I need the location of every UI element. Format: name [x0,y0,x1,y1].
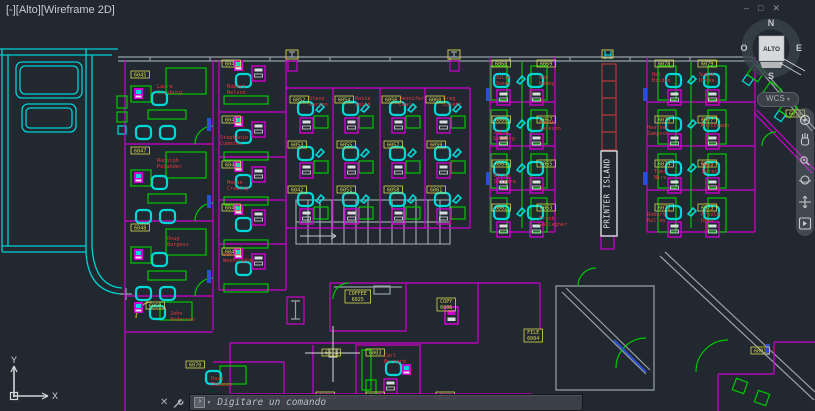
command-close-icon[interactable]: ✕ [160,397,168,408]
svg-text:Crowley: Crowley [227,186,249,192]
svg-text:Bernard: Bernard [384,359,406,365]
employee-name: PattiMoret [702,163,718,175]
employee-name: SteveLarson [309,96,328,108]
viewport-view-button[interactable]: [Alto] [16,4,41,16]
svg-text:6076: 6076 [658,117,671,123]
svg-text:6068: 6068 [495,61,508,67]
svg-text:6048: 6048 [134,225,147,231]
svg-text:6073: 6073 [701,205,714,211]
svg-text:6006: 6006 [440,305,452,311]
svg-text:Niro: Niro [654,175,667,181]
svg-text:Burgess: Burgess [167,242,189,248]
employee-name: DougBurgess [167,236,189,248]
svg-text:Lovett: Lovett [443,102,462,108]
svg-text:6055: 6055 [340,142,353,148]
viewport-visual-style-button[interactable]: [Wireframe 2D] [41,4,115,16]
svg-text:Washington: Washington [223,258,254,264]
customize-wrench-icon[interactable] [172,397,184,409]
svg-text:6064: 6064 [495,161,508,167]
svg-text:6066: 6066 [495,117,508,123]
room-tags-layer: 6045604760486050607060416043604460466049… [131,60,804,399]
svg-text:Rahmy: Rahmy [539,81,555,87]
employee-name: JulieJones [495,75,511,87]
command-dropdown-icon[interactable]: ▾ [207,399,210,406]
room-tag: COFFEE6025 [345,290,371,303]
employee-name: CarlBernard [384,353,406,365]
svg-text:6078: 6078 [658,61,671,67]
svg-text:Sampson: Sampson [647,131,669,137]
command-prompt[interactable]: Digitare un comando [217,397,326,408]
autocad-drawing-window: 6045604760486050607060416043604460466049… [0,0,815,411]
svg-text:6052: 6052 [293,97,306,103]
svg-text:Anderson: Anderson [170,317,195,323]
svg-text:Gallagher: Gallagher [539,222,567,228]
svg-text:6061: 6061 [430,187,443,193]
room-tag: 6048 [131,224,149,231]
blue-accents [207,88,770,372]
svg-text:6065: 6065 [540,161,553,167]
room-tag: 6070 [186,361,204,368]
viewcube-front-face[interactable] [760,62,783,68]
compass-west[interactable]: O [740,43,747,53]
svg-text:Brides: Brides [652,78,671,84]
wcs-label: WCS [766,94,785,103]
svg-text:6051: 6051 [340,187,353,193]
room-tag: 6063 [537,204,555,211]
command-input[interactable]: › ▾ Digitare un comando [189,394,583,411]
svg-text:6062: 6062 [495,205,508,211]
svg-text:Thommes: Thommes [211,382,233,388]
viewport-menu-button[interactable]: [-] [6,4,16,16]
svg-text:Cummins: Cummins [220,141,242,147]
svg-text:6054: 6054 [338,97,351,103]
employee-name: GregLovett [443,96,462,108]
svg-text:6060: 6060 [429,97,442,103]
command-line: ✕ › ▾ Digitare un comando [160,394,583,411]
svg-text:6053: 6053 [291,142,304,148]
employee-name: HeatherSampson [647,125,669,137]
svg-text:Larson: Larson [309,102,328,108]
svg-text:Kelley: Kelley [647,218,666,224]
wcs-dropdown-icon: ▾ [787,97,790,103]
svg-text:6063: 6063 [540,205,553,211]
employee-name: KeithJackson [539,120,561,132]
employee-name: JulieSeeborg [493,130,515,142]
svg-text:Polander: Polander [157,164,182,170]
svg-text:6045: 6045 [134,72,147,78]
svg-text:Chai: Chai [399,102,412,108]
svg-text:6001: 6001 [754,348,767,354]
navigation-wheel-icon[interactable] [801,116,810,125]
svg-text:6057: 6057 [387,142,400,148]
svg-text:6056: 6056 [385,97,398,103]
room-tag: 6047 [131,147,149,154]
employee-name: RosieSmith [355,96,371,108]
ucs-y-label: Y [11,355,17,365]
svg-text:6070: 6070 [189,362,202,368]
compass-north[interactable]: N [768,18,775,28]
svg-text:6043: 6043 [225,117,238,123]
compass-east[interactable]: E [796,43,802,53]
svg-text:6079: 6079 [701,61,714,67]
minimize-button[interactable]: – [744,3,749,13]
room-tag: FILE6004 [524,329,542,342]
svg-text:Ginsburg: Ginsburg [157,90,182,96]
viewport-controls: [-][Alto][Wireframe 2D] [6,4,115,16]
orbit-icon[interactable] [800,176,811,184]
svg-text:6025: 6025 [352,297,364,303]
employee-name: LauraGinsburg [157,84,182,96]
svg-text:6042: 6042 [291,187,304,193]
room-tag: 6045 [131,71,149,78]
room-tags2-layer: COFFEE6025COPY6006FILE6004 [345,290,542,342]
svg-text:6041: 6041 [225,61,238,67]
show-more-icon[interactable] [800,218,811,229]
navigation-bar[interactable] [796,108,814,236]
printer-island-label: PRINTER ISLAND [603,158,612,228]
pan-hand-icon[interactable] [802,133,809,145]
svg-text:Muscovado: Muscovado [701,123,729,129]
svg-text:Jackson: Jackson [539,126,561,132]
wcs-menu[interactable]: WCS ▾ [757,92,799,107]
employee-name: TamiNiro [654,169,667,181]
employee-name: SusanDrake [699,72,715,84]
employee-name: EliseSilvera [494,173,516,185]
employee-name: FrankGallagher [539,216,567,228]
viewcube[interactable]: N O E S ALTO [740,12,806,90]
employee-name: MeganCrowley [227,180,249,192]
restore-button[interactable]: □ [758,3,763,13]
furniture [134,60,719,394]
ucs-icon: Y X [4,354,62,406]
svg-text:6069: 6069 [540,61,553,67]
svg-text:Drake: Drake [699,78,715,84]
svg-text:6047: 6047 [134,148,147,154]
svg-text:6011: 6011 [325,350,338,356]
svg-text:Nelson: Nelson [227,90,246,96]
employee-name: RobertNelson [227,84,246,96]
svg-text:Dean: Dean [701,218,714,224]
employee-name: BobRahmy [539,75,555,87]
window-buttons: – □ ✕ [744,3,780,13]
recent-commands-icon[interactable]: › [194,397,205,408]
svg-text:6003: 6003 [369,350,382,356]
drawing-canvas[interactable]: 6045604760486050607060416043604460466049… [0,0,815,411]
svg-text:6074: 6074 [658,161,671,167]
room-tag: 6065 [537,160,555,167]
svg-text:6059: 6059 [430,142,443,148]
viewcube-top-face-label[interactable]: ALTO [763,46,780,53]
compass-south[interactable]: S [768,71,774,81]
svg-text:Seeborg: Seeborg [493,136,515,142]
employee-name: JohnAnderson [170,311,195,323]
svg-text:6046: 6046 [225,205,238,211]
zoom-icon[interactable] [801,157,809,165]
svg-text:6050: 6050 [149,303,162,309]
svg-text:Silvera: Silvera [494,179,516,185]
employee-name: RudolphPolander [157,158,182,170]
svg-text:6004: 6004 [527,336,539,342]
svg-text:6072: 6072 [658,205,671,211]
pan-arrows-icon[interactable] [799,196,811,208]
svg-text:Jones: Jones [495,81,511,87]
employee-name: RobertKelley [647,212,666,224]
svg-text:Moret: Moret [702,169,718,175]
ucs-x-label: X [52,391,58,401]
employee-name: StephanieCummins [220,135,248,147]
svg-text:6044: 6044 [225,162,238,168]
room-tag: COPY6006 [437,298,455,311]
svg-text:6058: 6058 [387,187,400,193]
close-button[interactable]: ✕ [772,3,780,13]
svg-text:Smith: Smith [355,102,371,108]
room-tag: 6003 [366,349,384,356]
